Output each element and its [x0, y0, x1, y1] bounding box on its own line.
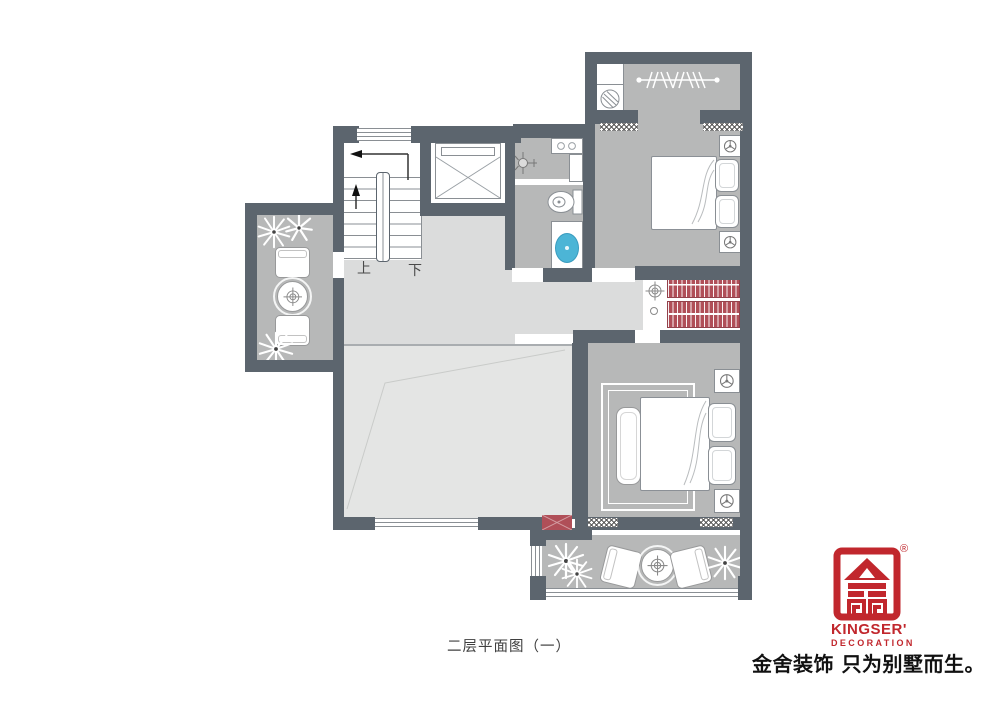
- wall: [530, 528, 546, 546]
- elevator-cross-icon: [435, 156, 501, 199]
- nightstand-lamp: [719, 231, 741, 253]
- stair-up-arrow: [350, 184, 362, 210]
- wall: [513, 124, 585, 138]
- door-sill: [600, 123, 638, 131]
- brand-subtitle: DECORATION: [831, 638, 915, 648]
- wall: [333, 517, 375, 530]
- wall: [245, 203, 257, 372]
- window: [375, 518, 478, 529]
- wall: [530, 576, 546, 600]
- wall: [505, 133, 515, 270]
- wall: [420, 203, 508, 216]
- toilet-icon: [546, 188, 584, 216]
- door-sill: [700, 518, 733, 527]
- wall: [585, 52, 752, 64]
- door-opening: [333, 252, 344, 278]
- drying-rack-icon: [634, 68, 722, 92]
- door-opening: [592, 268, 635, 282]
- wall: [585, 110, 638, 124]
- bath-cabinet: [569, 154, 583, 182]
- plan-caption: 二层平面图（一）: [399, 635, 619, 656]
- wall: [543, 268, 592, 282]
- plant-icon: [560, 557, 594, 591]
- wall: [420, 133, 431, 205]
- brand-slogan: 金舍装饰 只为别墅而生。: [752, 648, 985, 677]
- door-sill: [588, 518, 618, 527]
- wall: [635, 266, 752, 280]
- pillow: [715, 159, 739, 192]
- window: [531, 546, 542, 576]
- brand-name: KINGSER': [831, 621, 907, 638]
- wardrobe-hanging-clothes: [667, 301, 740, 328]
- pillow: [708, 403, 736, 442]
- corridor-floor: [510, 278, 645, 334]
- door-sill: [703, 123, 743, 131]
- wall: [740, 530, 752, 600]
- wall: [333, 126, 344, 530]
- stair-run-arrow: [346, 144, 410, 188]
- sink-basin: [555, 233, 579, 263]
- shower-icon: [514, 150, 540, 176]
- pillow: [708, 446, 736, 485]
- door-opening: [512, 268, 543, 282]
- balcony-railing-window: [546, 588, 738, 598]
- kingser-logo-icon: [833, 547, 901, 621]
- pillow: [715, 195, 739, 228]
- void-marker: [343, 346, 574, 517]
- crosshair-icon: [645, 281, 665, 301]
- bed-bottom-fold-lines: [678, 399, 708, 489]
- bath-counter-basins: [553, 140, 581, 152]
- nightstand-lamp: [714, 369, 740, 393]
- elevator-door-strip: [441, 147, 495, 156]
- registered-trademark: ®: [900, 543, 908, 555]
- closet-knob: [650, 307, 658, 315]
- floor-plan-page: 上 下: [0, 0, 1000, 707]
- round-table: [277, 281, 308, 312]
- wall: [572, 343, 588, 519]
- bench: [616, 407, 641, 485]
- stair-down-label: 下: [408, 260, 422, 280]
- nightstand-lamp: [719, 135, 741, 157]
- washing-machine-icon: [598, 86, 622, 112]
- window: [357, 128, 411, 141]
- wall: [573, 330, 635, 343]
- wall: [700, 110, 752, 124]
- plant-icon: [282, 211, 316, 245]
- bed-top-fold-lines: [686, 158, 716, 228]
- wall: [583, 124, 595, 282]
- air-conditioner: [542, 515, 572, 530]
- wall: [585, 52, 597, 114]
- wall: [245, 203, 337, 215]
- stair-up-label: 上: [357, 258, 371, 278]
- nightstand-lamp: [714, 489, 740, 513]
- armchair: [275, 247, 310, 278]
- door-opening: [635, 330, 660, 343]
- wall: [660, 330, 752, 343]
- wall: [245, 360, 337, 372]
